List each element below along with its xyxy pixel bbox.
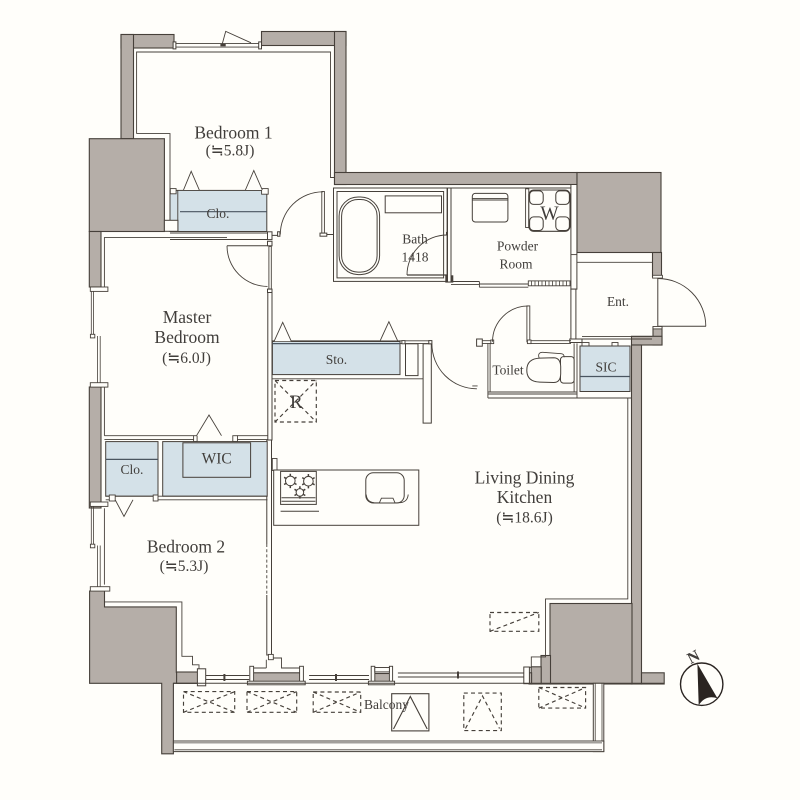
svg-text:W: W bbox=[540, 203, 559, 224]
svg-text:(≒18.6J): (≒18.6J) bbox=[496, 510, 552, 527]
svg-text:Clo.: Clo. bbox=[207, 206, 230, 221]
svg-text:Powder: Powder bbox=[497, 239, 539, 254]
svg-text:WIC: WIC bbox=[202, 451, 232, 468]
svg-text:Balcony: Balcony bbox=[364, 697, 409, 712]
svg-text:Ent.: Ent. bbox=[607, 294, 629, 309]
svg-text:(≒5.8J): (≒5.8J) bbox=[206, 143, 255, 160]
svg-text:1418: 1418 bbox=[402, 250, 429, 265]
svg-text:Bedroom 2: Bedroom 2 bbox=[147, 537, 225, 557]
svg-text:Sto.: Sto. bbox=[326, 352, 347, 367]
svg-text:Toilet: Toilet bbox=[492, 363, 524, 378]
svg-text:Bedroom: Bedroom bbox=[154, 327, 220, 347]
svg-text:Master: Master bbox=[163, 307, 212, 327]
svg-text:Room: Room bbox=[499, 257, 533, 272]
svg-text:(≒6.0J): (≒6.0J) bbox=[162, 350, 211, 367]
svg-text:Living Dining: Living Dining bbox=[475, 468, 575, 488]
svg-text:SIC: SIC bbox=[595, 360, 616, 375]
svg-text:Clo.: Clo. bbox=[121, 462, 144, 477]
svg-text:(≒5.3J): (≒5.3J) bbox=[160, 558, 209, 575]
svg-text:R: R bbox=[290, 392, 303, 413]
svg-text:Bath: Bath bbox=[402, 232, 428, 247]
svg-text:Bedroom 1: Bedroom 1 bbox=[194, 123, 272, 143]
svg-text:Kitchen: Kitchen bbox=[497, 487, 553, 507]
